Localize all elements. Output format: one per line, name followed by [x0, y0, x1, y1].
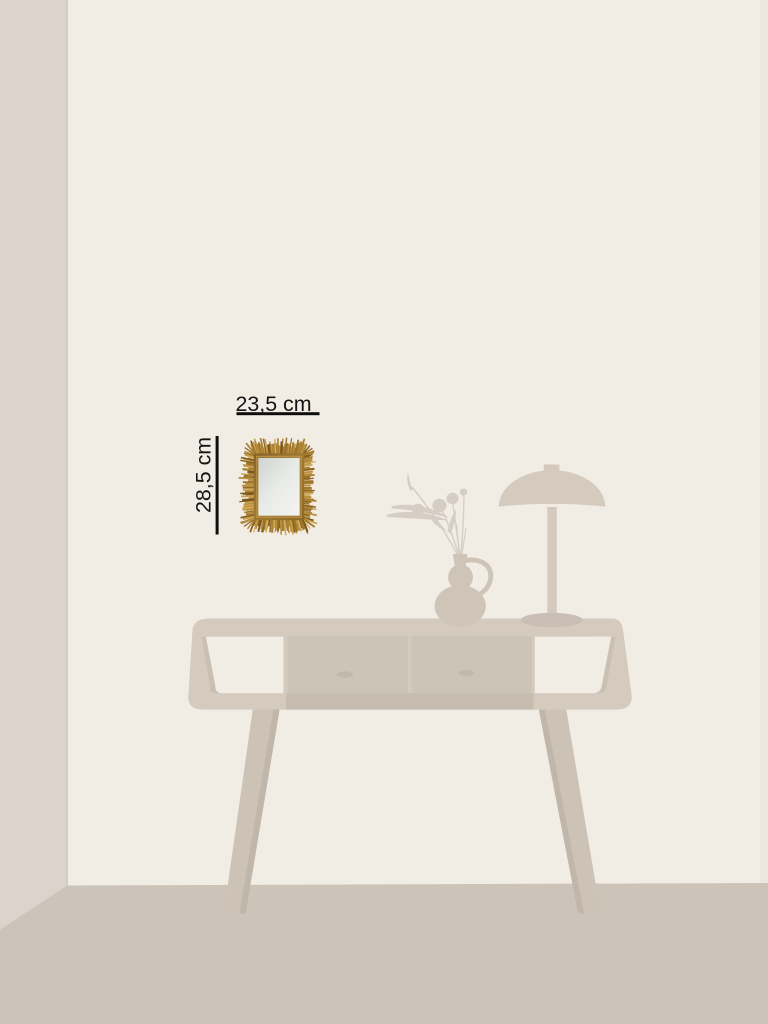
svg-text:28,5 cm: 28,5 cm	[192, 437, 216, 513]
